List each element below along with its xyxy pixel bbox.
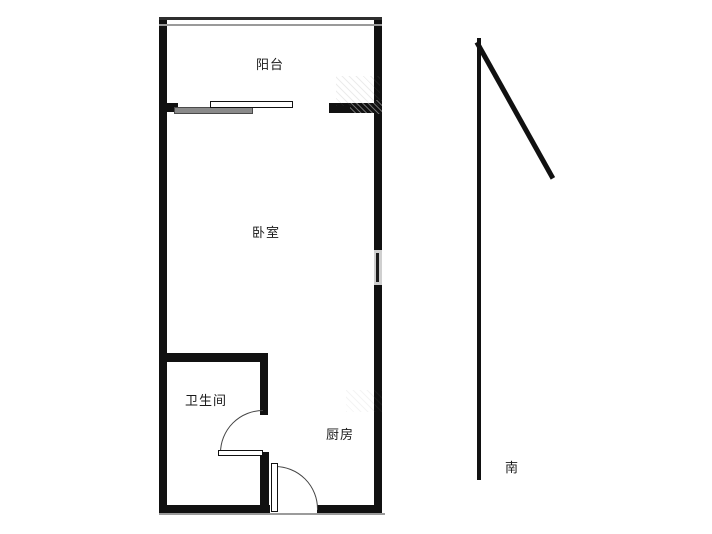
bathroom-right-wall	[260, 353, 268, 415]
bathroom-top-wall	[159, 353, 268, 362]
outer-left-wall	[159, 19, 167, 514]
balcony-window-inner-line	[159, 24, 382, 26]
compass-south-label: 南	[505, 457, 519, 476]
floor-plan-canvas: 阳台 卧室 卫生间 厨房 南	[0, 0, 712, 534]
balcony-window-outer-line	[159, 17, 382, 20]
bathroom-door-jamb-wall	[260, 452, 269, 513]
bathroom-door-leaf	[218, 450, 263, 456]
kitchen-door-swing-arc	[275, 466, 319, 510]
sliding-door-white-panel	[210, 101, 293, 108]
kitchen-door-leaf	[271, 463, 278, 512]
room-label-kitchen: 厨房	[326, 424, 354, 443]
watermark-hatch	[346, 390, 382, 412]
sliding-door-gray-panel	[174, 107, 253, 114]
bottom-wall-shadow-line	[159, 513, 385, 515]
compass-needle-shaft	[477, 38, 481, 480]
compass-needle-head-icon	[475, 41, 555, 180]
room-label-balcony: 阳台	[256, 54, 284, 73]
bedroom-window-glass-line	[376, 253, 379, 282]
room-label-bedroom: 卧室	[252, 222, 280, 241]
bathroom-door-swing-arc	[220, 410, 263, 453]
room-label-bathroom: 卫生间	[185, 390, 227, 409]
watermark-hatch	[350, 100, 382, 114]
